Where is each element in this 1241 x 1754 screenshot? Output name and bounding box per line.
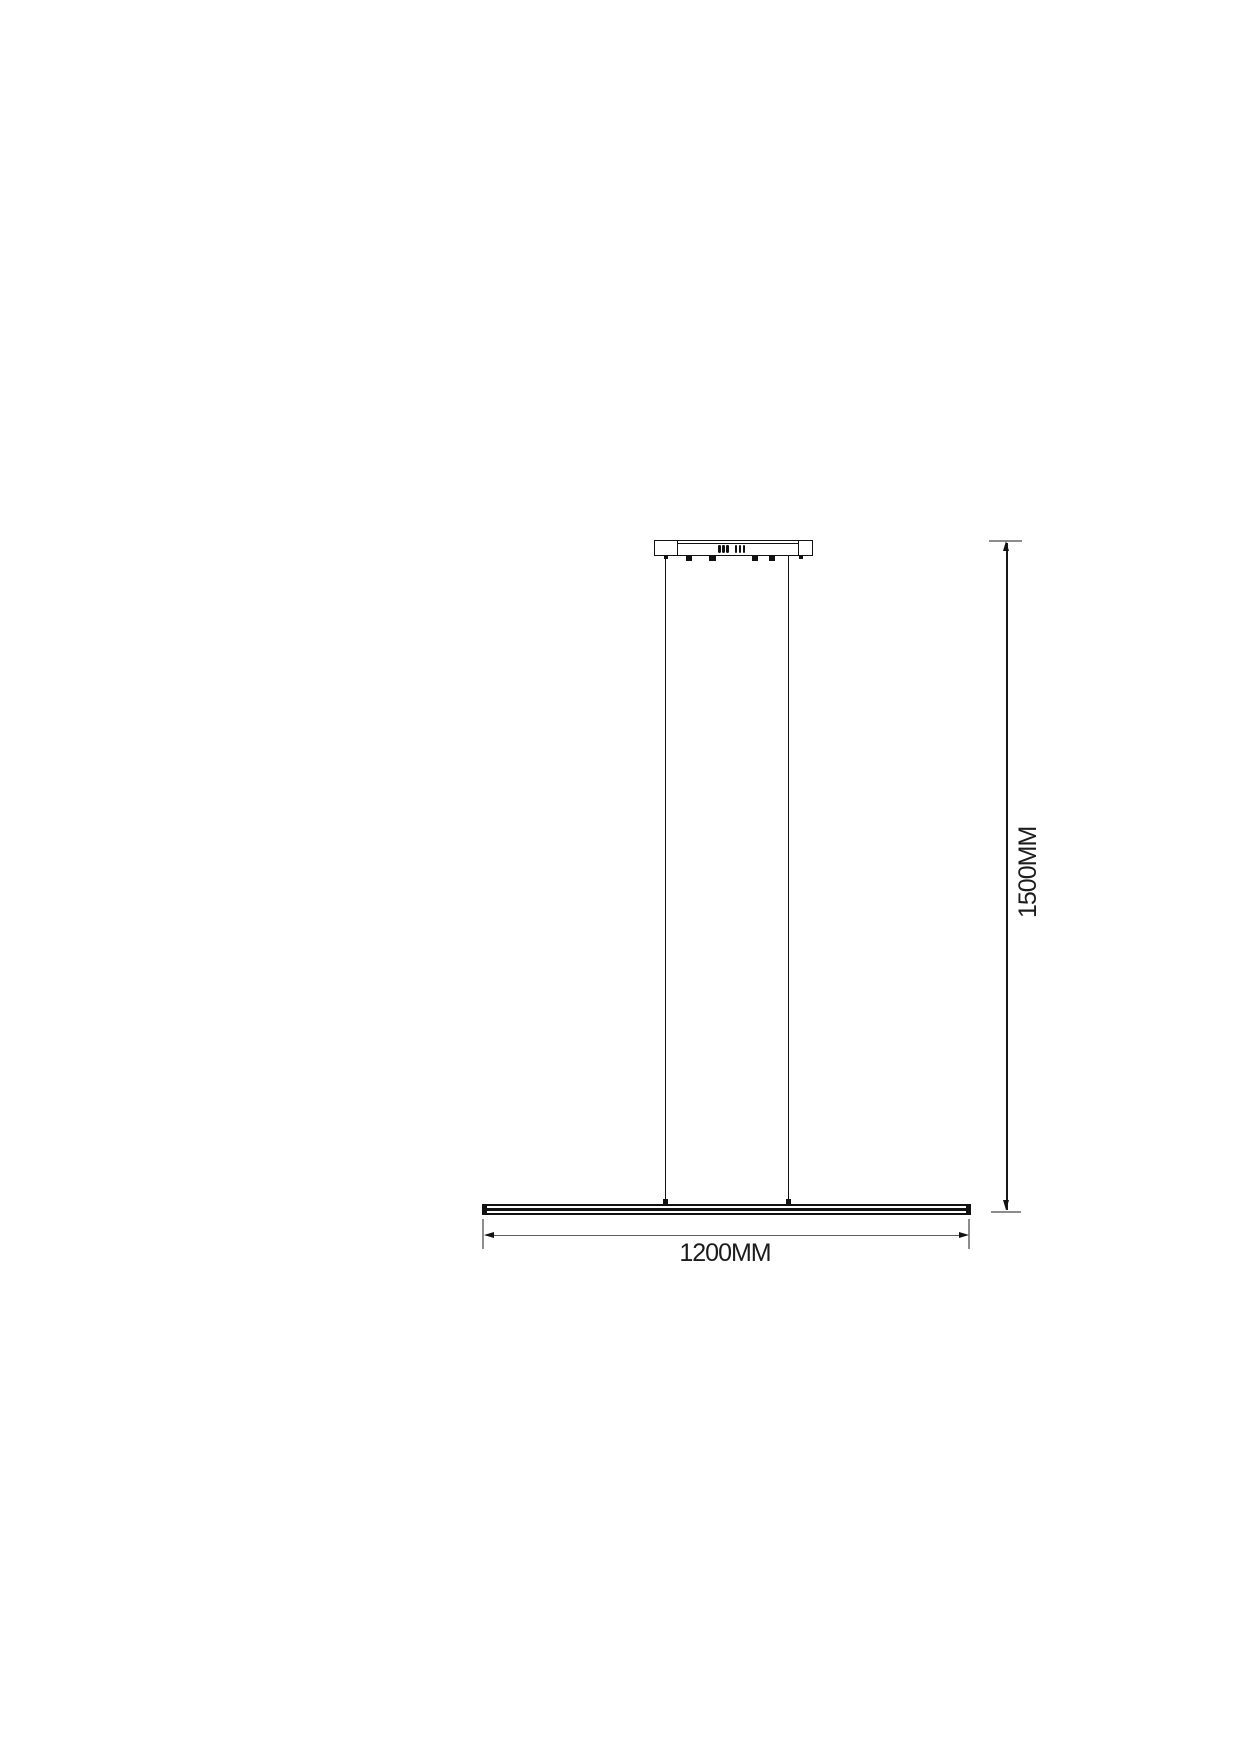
light-bar-bottom-edge bbox=[482, 1213, 971, 1215]
canopy-mounting-clamp bbox=[686, 556, 693, 561]
canopy-vent-slot bbox=[718, 545, 721, 552]
canopy-vent-slot bbox=[735, 545, 738, 552]
width-arrowhead-left-icon bbox=[484, 1232, 494, 1238]
light-bar-led-channel bbox=[482, 1208, 971, 1211]
width-dimension-line bbox=[486, 1235, 965, 1237]
canopy-mounting-clamp bbox=[752, 556, 759, 561]
height-dimension-line bbox=[1006, 543, 1008, 1210]
height-arrowhead-down-icon bbox=[1003, 1200, 1009, 1210]
wire-grip-connector-left bbox=[663, 1199, 669, 1204]
canopy-middle-top-edge bbox=[677, 543, 798, 544]
width-arrowhead-right-icon bbox=[959, 1232, 969, 1238]
light-bar-endcap-right bbox=[966, 1204, 971, 1215]
width-extension-line-right bbox=[968, 1219, 970, 1249]
width-dimension-label: 1200MM bbox=[660, 1241, 790, 1266]
dimension-drawing-canvas: 1200MM 1500MM bbox=[0, 0, 1241, 1754]
suspension-wire-left bbox=[665, 556, 667, 1203]
canopy-vent-slot bbox=[739, 545, 742, 552]
wire-grip-connector-right bbox=[786, 1199, 792, 1204]
canopy-mounting-clamp bbox=[769, 556, 776, 561]
light-bar-top-edge bbox=[482, 1204, 971, 1206]
suspension-wire-right bbox=[788, 556, 790, 1203]
canopy-vent-slot bbox=[726, 545, 729, 552]
light-bar-endcap-left bbox=[482, 1204, 487, 1215]
canopy-vent-slot bbox=[743, 545, 746, 552]
height-dimension-label: 1500MM bbox=[1016, 834, 1041, 918]
canopy-vent-slot bbox=[722, 545, 725, 552]
canopy-wire-anchor-tick bbox=[799, 556, 803, 559]
height-arrowhead-up-icon bbox=[1003, 541, 1009, 551]
canopy-mounting-clamp bbox=[709, 556, 716, 561]
height-extension-line-bottom bbox=[991, 1211, 1021, 1213]
